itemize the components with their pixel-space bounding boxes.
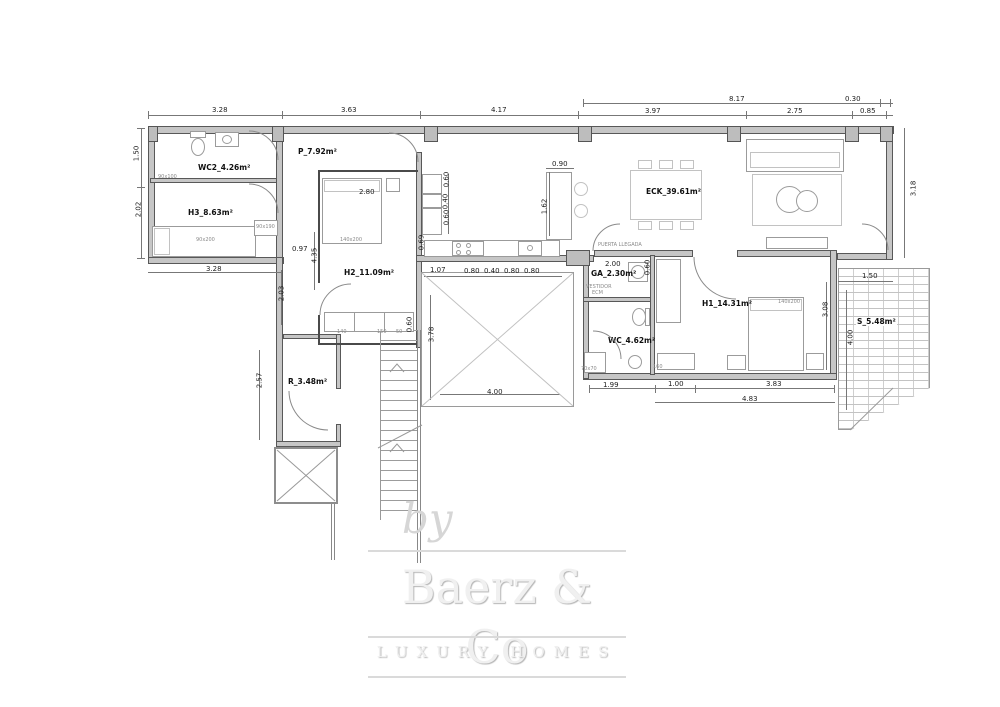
dim-label: 0.97 [292,246,308,253]
dim-label: 0.30 [845,96,861,103]
dim-label: 0.80 [504,268,520,275]
dim-label: 3.28 [212,107,228,114]
dim-line [546,168,574,169]
wall-segment [837,253,893,260]
dim-label: 1.50 [862,273,878,280]
toilet-bowl [191,138,205,156]
dining-chair [680,221,694,230]
door-arc [289,391,328,430]
dim-label: 4.35 [311,248,318,264]
dim-line [549,172,550,236]
dim-tick [137,187,145,188]
wall-segment [148,126,894,134]
dining-chair [659,160,673,169]
pillar [880,126,893,142]
dim-label: 3.63 [341,107,357,114]
dim-label: 3.78 [428,327,435,343]
dim-label: 0.80 [464,268,480,275]
dim-line [846,290,847,410]
bench [657,353,695,370]
room-label-eck: ECK_39.61m² [646,188,701,196]
bed-pillow [154,228,170,255]
burner [456,243,461,248]
room-label-h3: H3_8.63m² [188,209,233,217]
dim-tick [282,111,283,119]
room-label-ga: GA_2.30m² [591,270,636,278]
dim-tick [886,111,887,119]
dim-label: 2.75 [787,108,803,115]
logo-rule [368,676,626,678]
wall-segment [283,334,341,339]
logo-tagline: LUXURY HOMES [368,645,626,660]
toilet [190,131,206,138]
dim-tick [589,385,590,393]
dim-label: 2.00 [605,261,621,268]
dim-label: 0.40 [442,194,449,210]
wall-segment [583,297,655,302]
dim-tick [583,99,584,107]
dim-label: 4.17 [491,107,507,114]
dim-label: 1.99 [603,382,619,389]
wall-segment [737,250,837,257]
wardrobe-divider [354,313,355,331]
pillar [566,250,590,266]
partition-wall [318,170,418,172]
dim-tick [655,385,656,393]
kitchen-tall-unit [422,208,442,235]
dim-tick [695,385,696,393]
note-150: 150 [377,330,387,335]
sink-drain [527,245,533,251]
dining-chair [659,221,673,230]
partition-wall [318,170,320,283]
dim-label: 1.62 [541,199,548,215]
basin-bowl [222,135,232,144]
dim-label: 3.97 [645,108,661,115]
door-arc [389,133,418,162]
note-h3-closet: 90x190 [256,225,275,230]
note-h3-bed: 90x200 [196,238,215,243]
room-label-p: P_7.92m² [298,148,337,156]
nightstand [806,353,824,370]
nightstand [386,178,400,192]
burner [456,250,461,255]
pillar [424,126,438,142]
wc-basin [628,355,642,369]
dim-tick [746,111,747,119]
wall-segment [148,257,284,264]
watermark-logo: Baerz & Co LUXURY HOMES [368,550,626,684]
dim-tick [148,111,149,119]
dim-tick [420,111,421,119]
door-arc [249,184,278,213]
dim-label: 0.80 [524,268,540,275]
toilet-tank [645,308,650,326]
dim-label: 0.69 [418,235,425,251]
dim-line [259,350,260,440]
kitchen-tall-unit [422,174,442,194]
note-h2-bed: 140x200 [340,238,362,243]
wall-segment [594,250,693,257]
dim-label: 0.60 [406,317,413,333]
dim-tick [137,128,145,129]
dim-label: 3.83 [766,381,782,388]
dim-line [141,128,142,259]
note-ecm: ECM [592,291,603,296]
note-h1-bed: 140x200 [778,300,800,305]
dim-line [583,103,893,104]
dim-label: 1.50 [133,146,140,162]
dim-line [430,295,431,400]
watermark-by: by [402,498,453,540]
dim-label: 0.85 [860,108,876,115]
dim-label: 0.60 [443,172,450,188]
dim-label: 8.17 [729,96,745,103]
pillar [272,126,284,142]
dim-tick [880,99,881,107]
dining-chair [638,221,652,230]
dim-label: 0.40 [484,268,500,275]
room-label-wc: WC_4.62m² [608,337,655,345]
room-label-h1: H1_14.31m² [702,300,752,308]
note-160: 160 [653,365,663,370]
patio-lightwell [421,272,574,407]
dim-label: 2.03 [278,286,285,302]
dim-label: 2.02 [135,202,142,218]
note-entrance: PUERTA LLEGADA [598,243,642,248]
wardrobe-h1 [656,259,681,323]
note-wc2-fix: 90x100 [158,175,177,180]
bar-stool [574,204,588,218]
shaft-rail [331,504,335,560]
dining-chair [638,160,652,169]
dim-line [838,281,893,282]
note-140: 140 [337,330,347,335]
wall-segment [276,126,283,264]
kitchen-tall-unit [422,194,442,208]
dim-line [589,388,835,389]
floor-plan: 8.17 0.30 3.28 3.63 4.17 3.97 2.75 0.85 … [0,0,1000,707]
dim-label: 0.60 [644,260,651,276]
dim-tick [137,258,145,259]
dim-line [148,115,893,116]
dim-line [424,276,562,277]
dim-label: 2.80 [359,189,375,196]
room-label-wc2: WC2_4.26m² [198,164,250,172]
dim-label: 4.00 [847,330,854,346]
dim-line [904,128,905,258]
light-shaft [274,447,338,504]
dim-label: 1.07 [430,267,446,274]
wall-segment [830,250,837,379]
dim-label: 3.28 [206,266,222,273]
wall-segment [886,126,893,260]
pillar [727,126,741,142]
tv-console [766,237,828,249]
dim-label: 3.18 [910,181,917,197]
note-shower: 70x70 [581,367,597,372]
dining-chair [680,160,694,169]
dim-label: 1.00 [668,381,684,388]
pillar [845,126,859,142]
logo-rule [368,550,626,552]
partition-wall [318,315,320,345]
coffee-table [796,190,818,212]
burner [466,243,471,248]
pillar [148,126,158,142]
dim-line [826,282,827,370]
dim-tick [578,111,579,119]
logo-rule [368,636,626,638]
door-arc [862,224,888,250]
dim-label: 3.08 [822,302,829,318]
sofa-seat-line [750,152,840,168]
dim-label: 4.83 [742,396,758,403]
nightstand [727,355,746,370]
bar-stool [574,182,588,196]
room-label-h2: H2_11.09m² [344,269,394,277]
room-label-s: S_5.48m² [856,318,897,326]
door-arc [320,284,351,315]
note-50: 50 [396,330,402,335]
dim-tick [890,99,891,107]
dim-label: 0.90 [552,161,568,168]
door-arc [694,257,736,299]
burner [466,250,471,255]
wall-segment [583,373,837,380]
dim-label: 0.60 [443,210,450,226]
dim-tick [834,385,835,393]
toilet-bowl [632,308,646,326]
staircase [380,330,418,520]
dim-label: 4.00 [487,389,503,396]
pillar [578,126,592,142]
dim-tick [852,111,853,119]
terrace-paving [838,268,930,430]
room-label-r: R_3.48m² [288,378,327,386]
dim-label: 2.57 [256,373,263,389]
